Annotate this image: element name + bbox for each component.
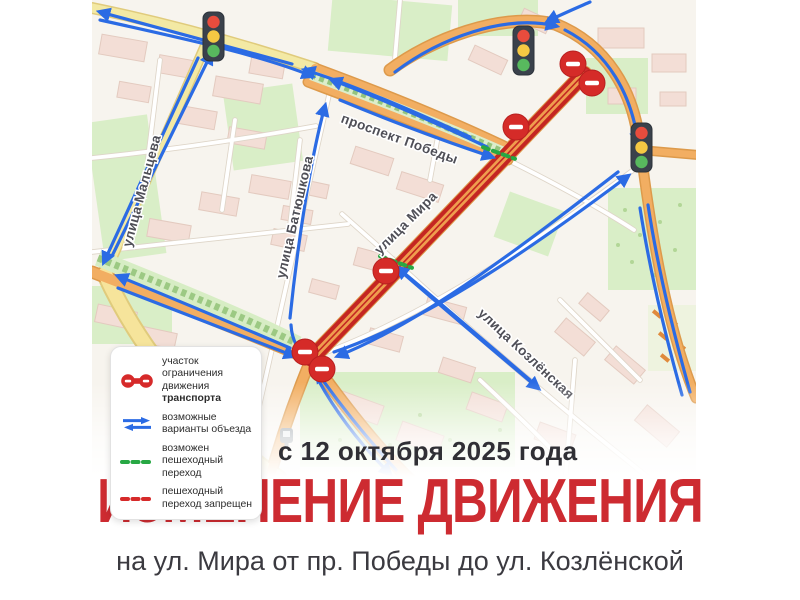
- legend-item-detour: возможные варианты объезда: [119, 412, 255, 437]
- no-entry-icon: [373, 258, 399, 284]
- poster: улица Мальцеваулица Батюшковапроспект По…: [0, 0, 800, 600]
- crossing-forbidden-icon: [119, 491, 155, 507]
- detour-arrows-icon: [119, 416, 155, 432]
- no-entry-icon: [560, 51, 586, 77]
- no-entry-icon: [503, 114, 529, 140]
- no-entry-icon: [309, 356, 335, 382]
- traffic-light-icon: [513, 26, 534, 75]
- restricted-segment-icon: [119, 373, 155, 389]
- no-entry-icon: [579, 70, 605, 96]
- traffic-light-icon: [203, 12, 224, 61]
- legend-item-crossing-allowed: возможен пешеходный переход: [119, 443, 255, 480]
- page-subtitle: на ул. Мира от пр. Победы до ул. Козлёнс…: [0, 546, 800, 577]
- legend-item-label: возможен пешеходный переход: [162, 443, 255, 480]
- legend-item-label: участок ограничения движения транспорта: [162, 356, 255, 406]
- legend-item-crossing-forbidden: пешеходный переход запрещен: [119, 486, 255, 511]
- legend-item-label: возможные варианты объезда: [162, 412, 251, 437]
- legend-item-label: пешеходный переход запрещен: [162, 486, 252, 511]
- crossing-allowed-icon: [119, 454, 155, 470]
- legend-item-restricted: участок ограничения движения транспорта: [119, 356, 255, 406]
- legend: участок ограничения движения транспорта …: [110, 346, 262, 520]
- date-banner: с 12 октября 2025 года: [278, 436, 577, 467]
- traffic-light-icon: [631, 123, 652, 172]
